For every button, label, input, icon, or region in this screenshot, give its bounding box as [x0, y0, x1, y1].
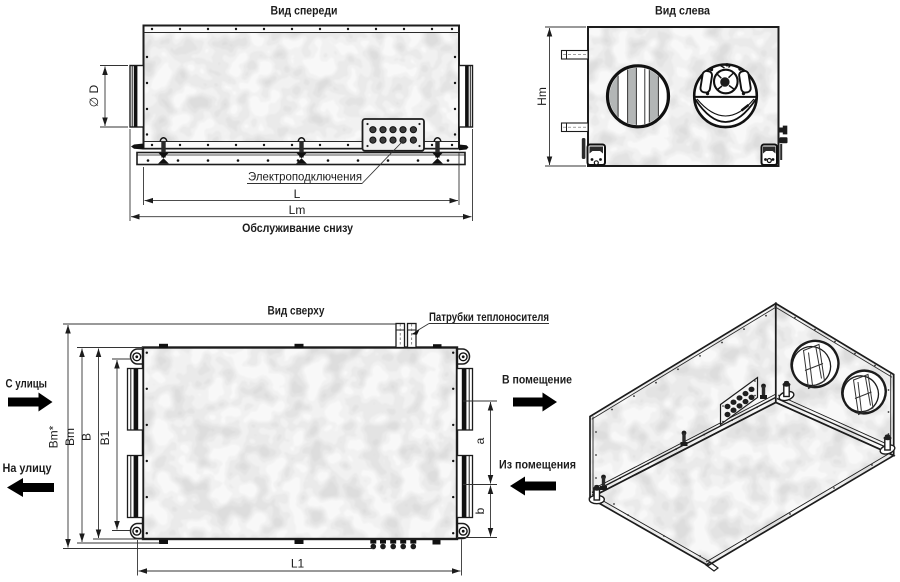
svg-text:b: b [473, 507, 487, 514]
svg-text:На улицу: На улицу [3, 461, 52, 475]
svg-text:L: L [294, 187, 301, 201]
svg-text:Обслуживание снизу: Обслуживание снизу [242, 221, 353, 235]
svg-text:Патрубки теплоносителя: Патрубки теплоносителя [429, 310, 549, 324]
svg-text:Вид сверху: Вид сверху [268, 304, 325, 318]
svg-text:B: B [80, 433, 94, 441]
svg-text:B1: B1 [98, 430, 112, 445]
svg-text:Bm: Bm [63, 428, 77, 446]
svg-text:С улицы: С улицы [6, 377, 48, 391]
svg-text:Bm*: Bm* [47, 425, 61, 448]
svg-text:Электроподключения: Электроподключения [248, 172, 362, 184]
svg-text:a: a [473, 437, 487, 444]
svg-text:Вид спереди: Вид спереди [271, 4, 338, 18]
svg-text:∅ D: ∅ D [87, 84, 101, 107]
svg-text:В помещение: В помещение [502, 373, 572, 387]
svg-text:Lm: Lm [289, 203, 306, 217]
svg-text:L1: L1 [291, 557, 305, 571]
svg-text:Hm: Hm [535, 87, 549, 106]
svg-text:Из помещения: Из помещения [499, 458, 576, 472]
svg-text:Вид слева: Вид слева [655, 4, 710, 18]
